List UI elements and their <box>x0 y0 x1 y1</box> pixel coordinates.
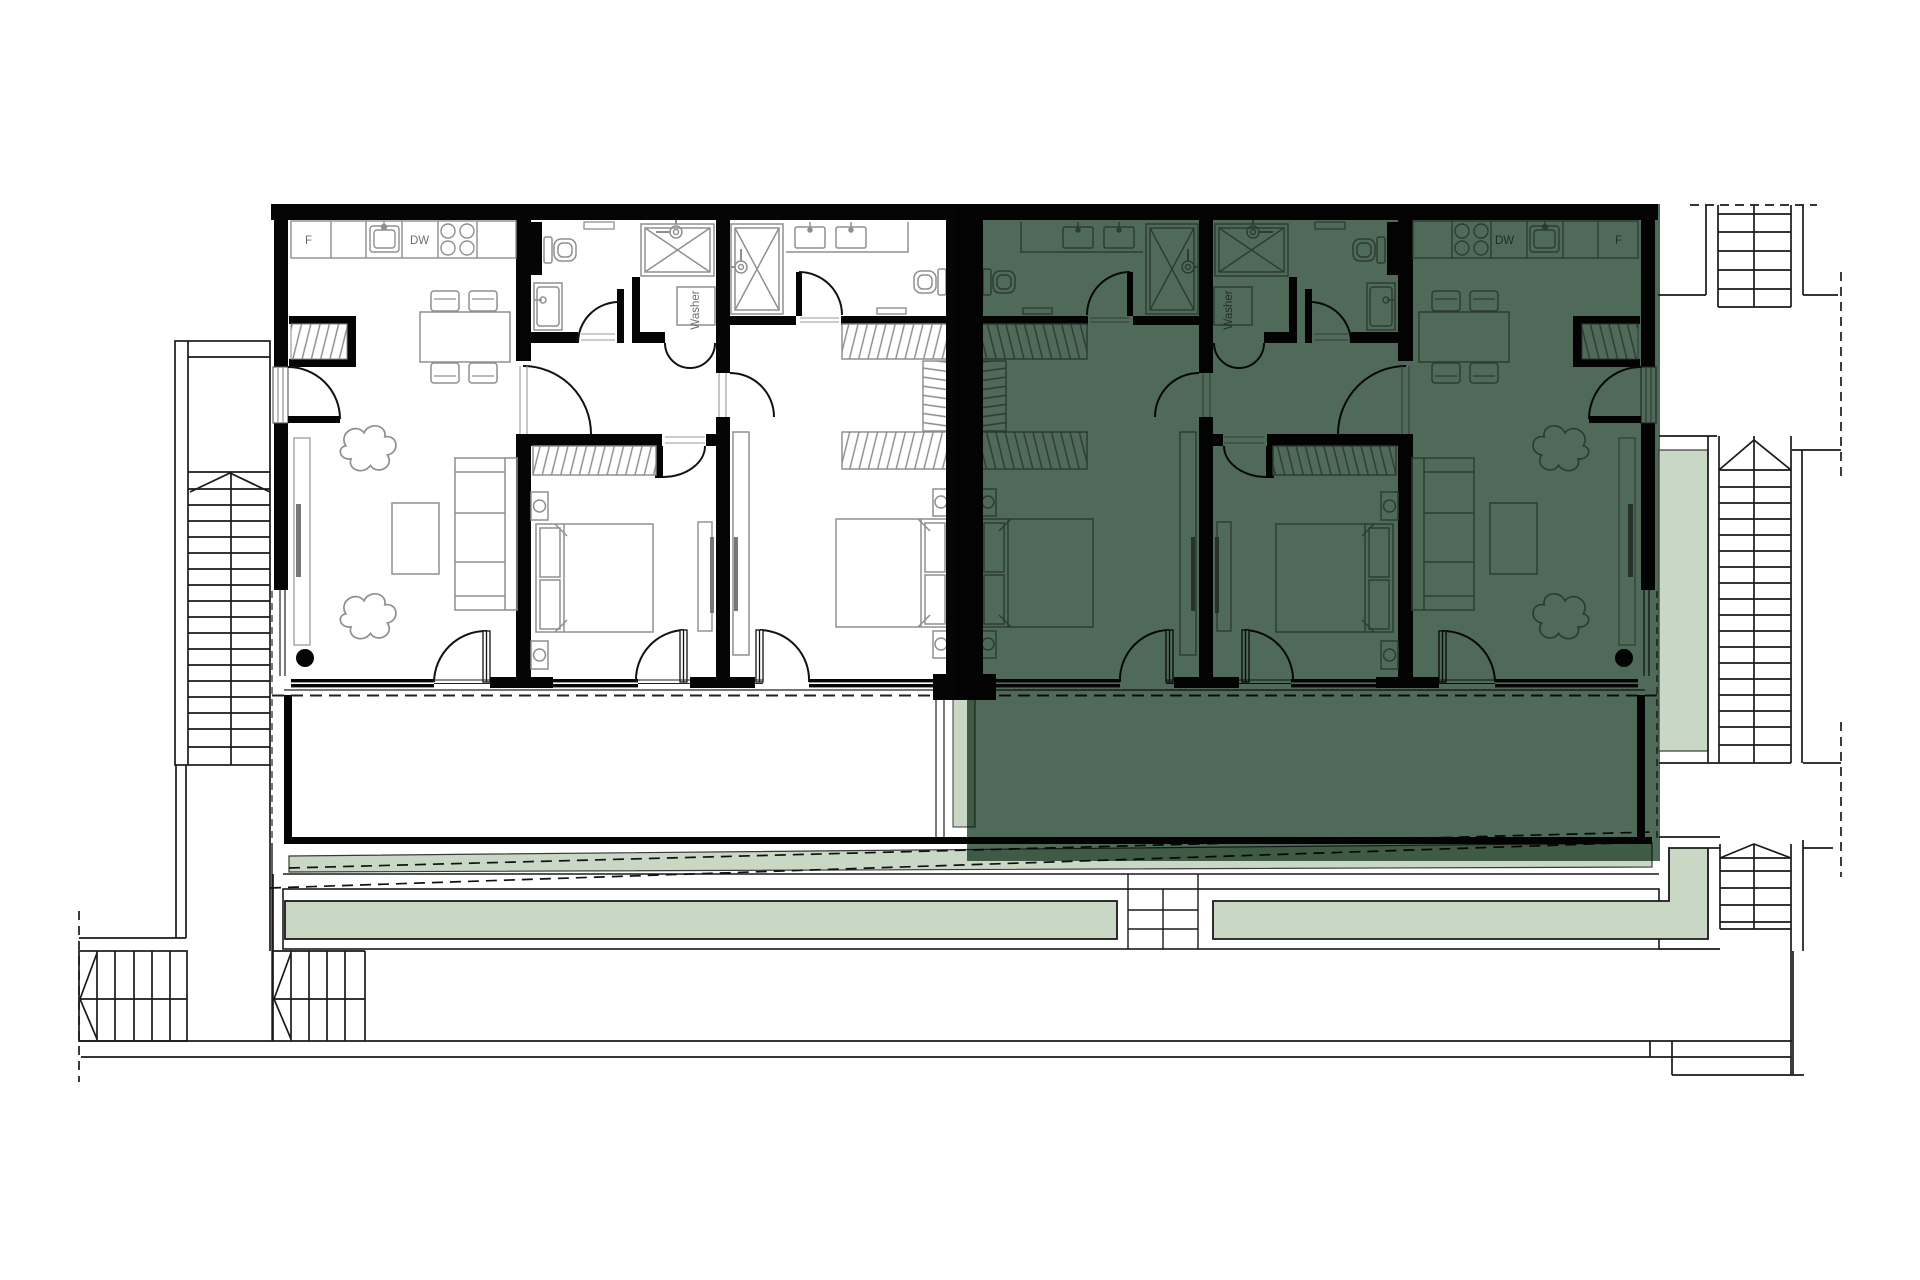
svg-text:DW: DW <box>410 235 429 247</box>
svg-text:F: F <box>305 235 312 247</box>
svg-text:Washer: Washer <box>690 290 702 329</box>
